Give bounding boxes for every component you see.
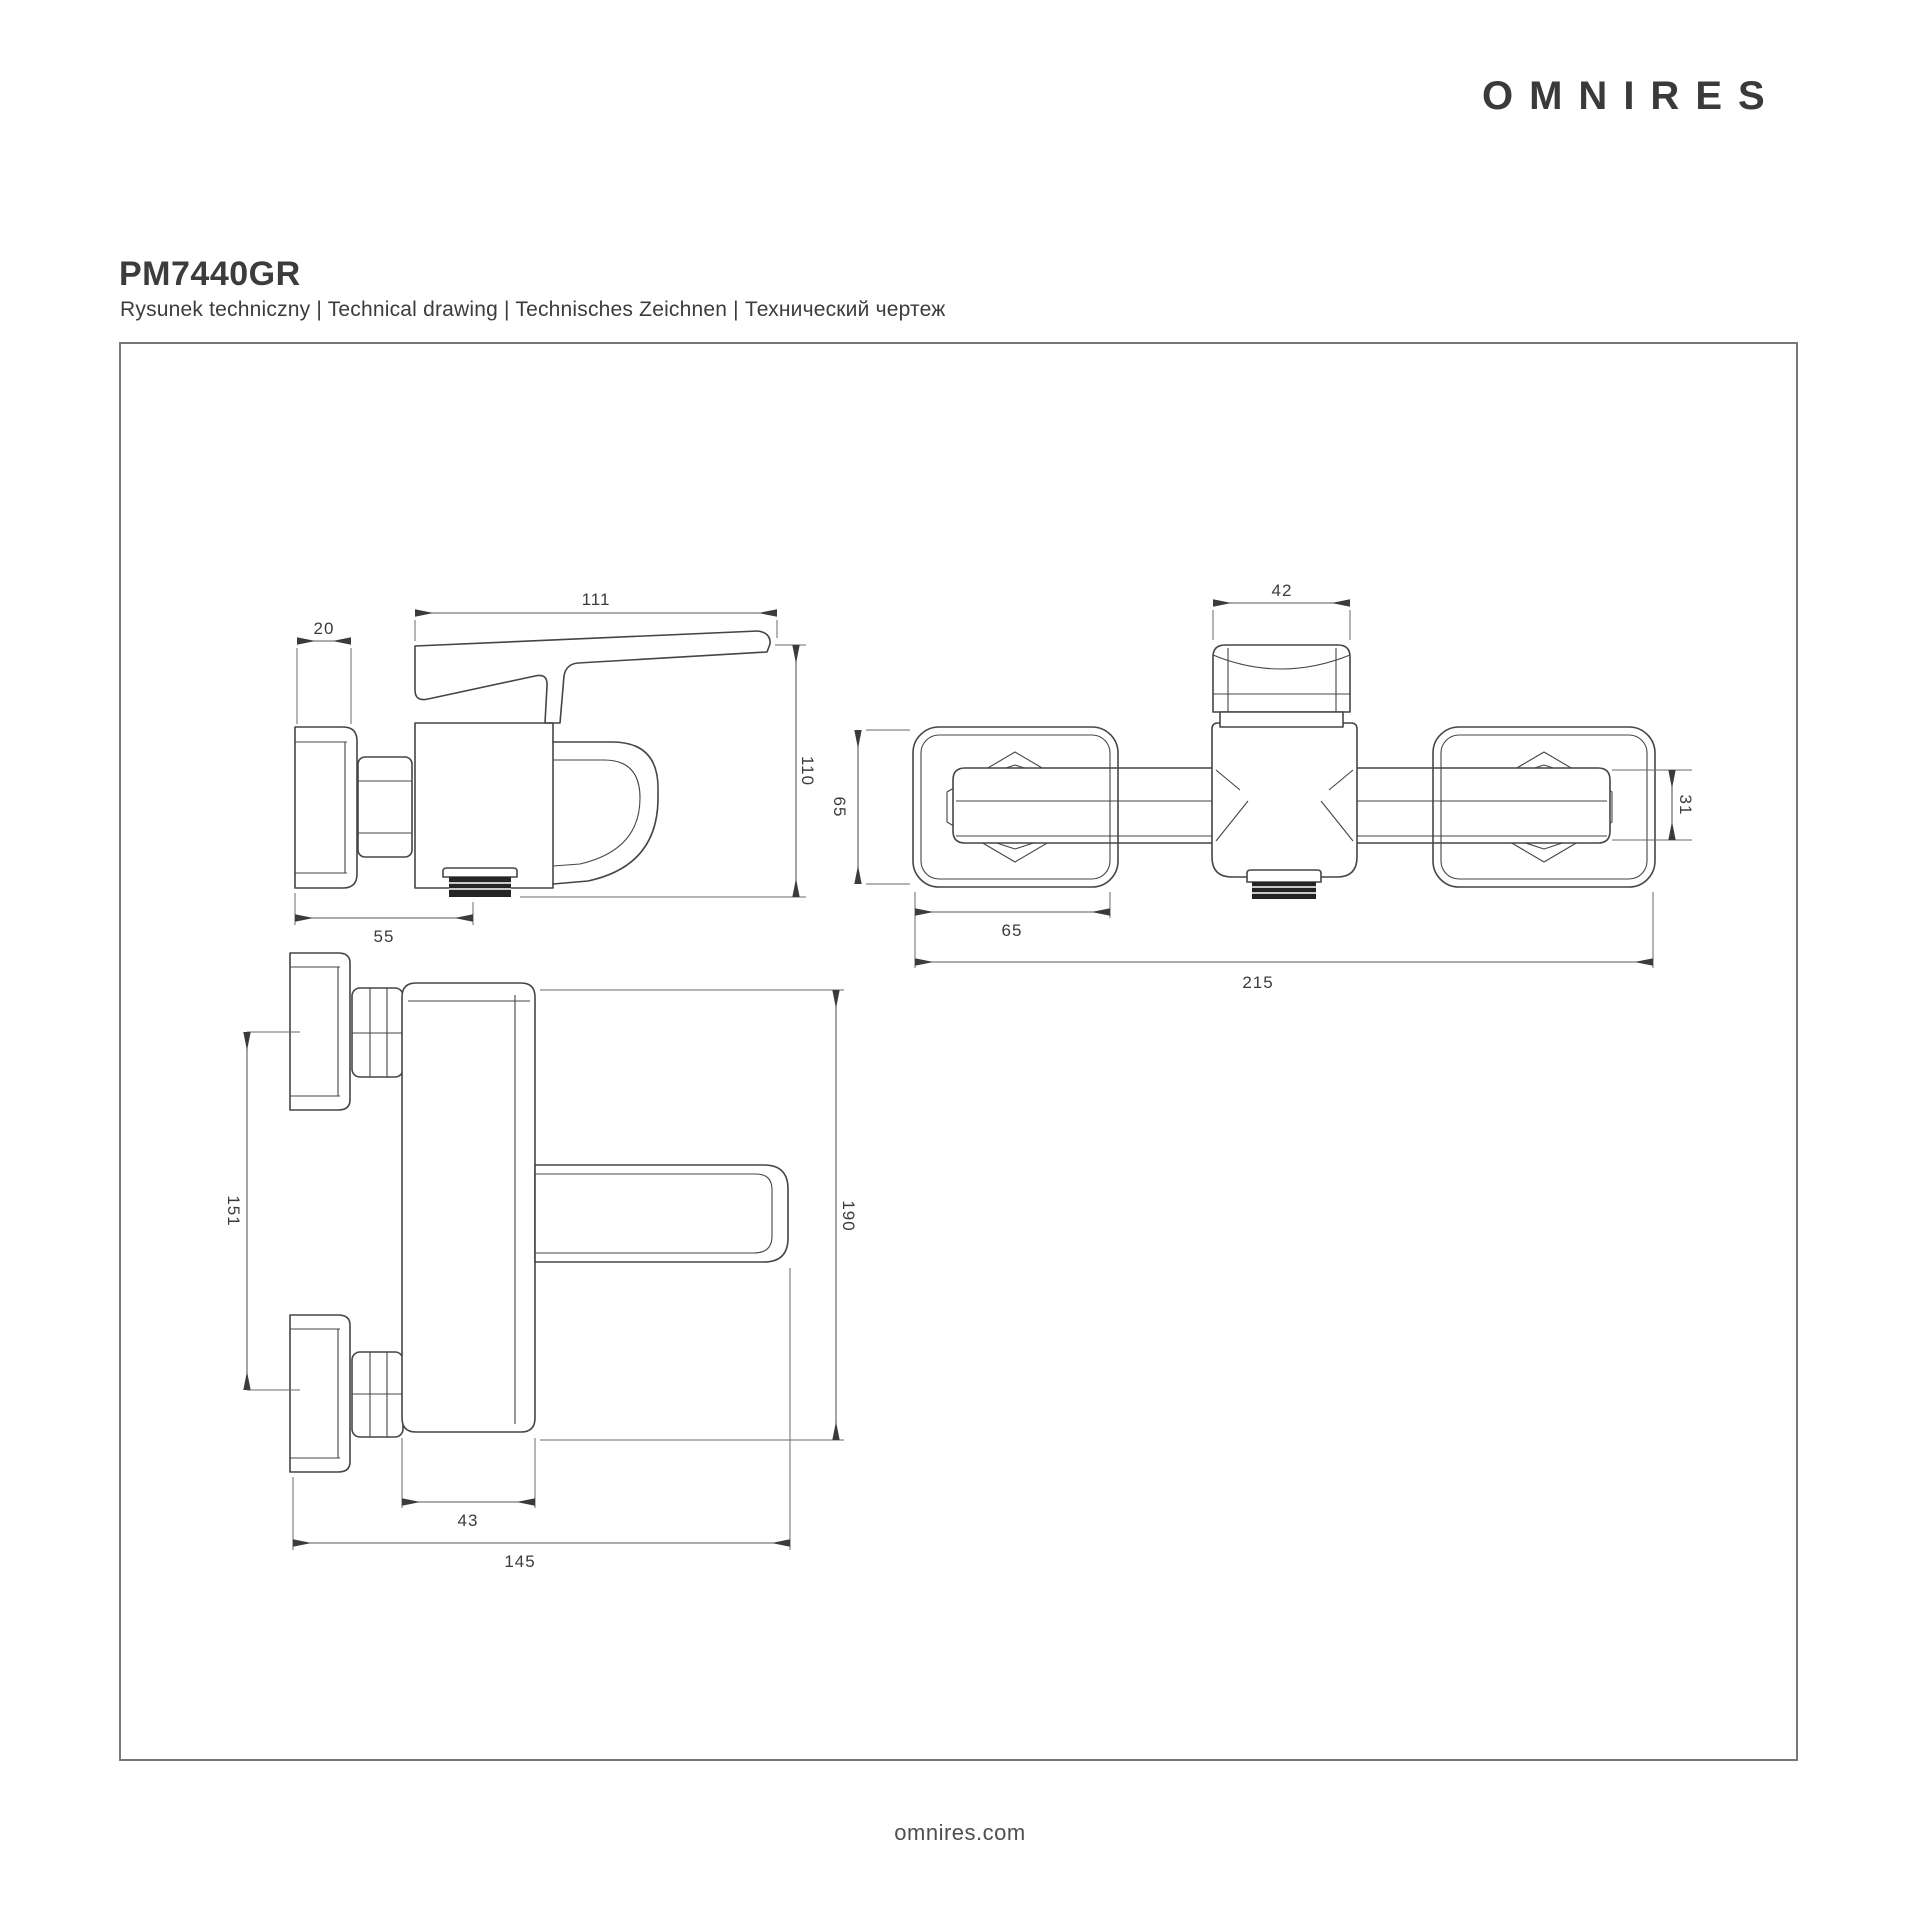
- dim-side-height: 110: [798, 756, 817, 786]
- dim-top-handle-width: 42: [1272, 581, 1293, 600]
- dim-front-body-width: 43: [458, 1511, 479, 1530]
- top-view-part: [913, 645, 1655, 899]
- side-view-dimensions: 20 111 110 55: [295, 590, 817, 946]
- front-view-dimensions: 151 190 43 145: [224, 990, 858, 1571]
- dim-front-total-width: 145: [504, 1552, 535, 1571]
- dim-side-lever-length: 111: [582, 590, 611, 609]
- dim-side-flange-depth: 20: [314, 619, 335, 638]
- dim-front-connection-spacing: 151: [224, 1195, 243, 1226]
- dim-front-total-height: 190: [839, 1200, 858, 1231]
- side-view-part: [295, 631, 770, 897]
- side-view: 20 111 110 55: [295, 590, 817, 946]
- dim-top-spout-width: 31: [1676, 795, 1695, 816]
- technical-drawing-canvas: 20 111 110 55: [0, 0, 1920, 1920]
- front-view: 151 190 43 145: [224, 953, 858, 1571]
- dim-top-flange-width: 65: [1002, 921, 1023, 940]
- dim-top-total-length: 215: [1242, 973, 1273, 992]
- dim-top-flange-height: 65: [830, 797, 849, 818]
- top-view: 42 65 65 31 215: [830, 581, 1695, 992]
- document-page: OMNIRES PM7440GR Rysunek techniczny | Te…: [0, 0, 1920, 1920]
- front-view-part: [290, 953, 788, 1472]
- dim-side-wall-to-spout: 55: [374, 927, 395, 946]
